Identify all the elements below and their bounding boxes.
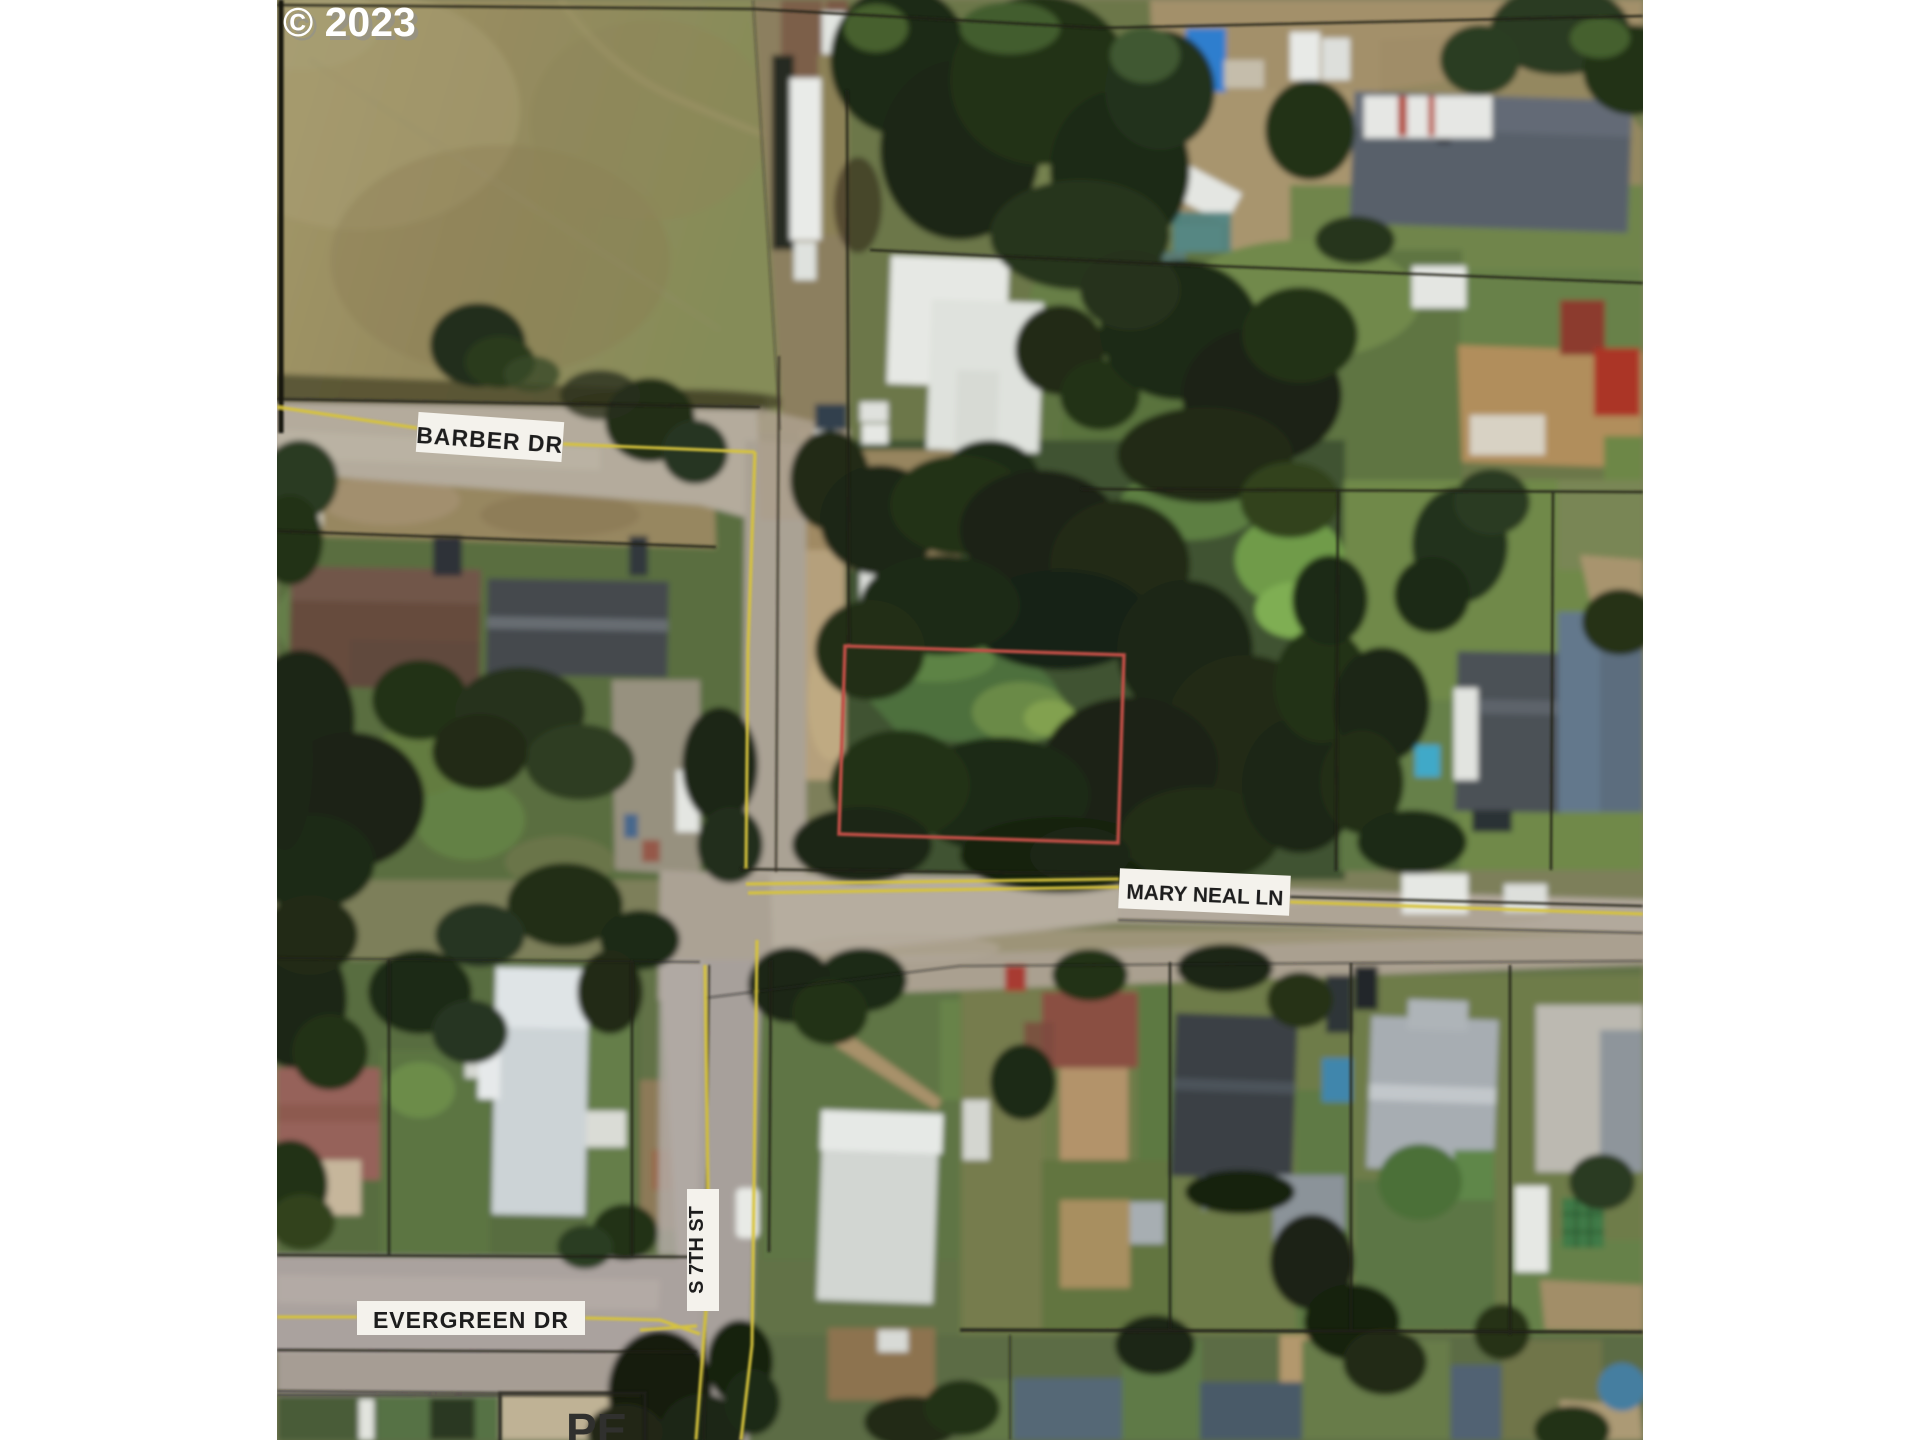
svg-text:PE: PE — [566, 1404, 627, 1440]
svg-text:EVERGREEN DR: EVERGREEN DR — [373, 1307, 569, 1333]
svg-text:S 7TH ST: S 7TH ST — [686, 1206, 708, 1294]
svg-text:© 2023: © 2023 — [283, 0, 416, 45]
